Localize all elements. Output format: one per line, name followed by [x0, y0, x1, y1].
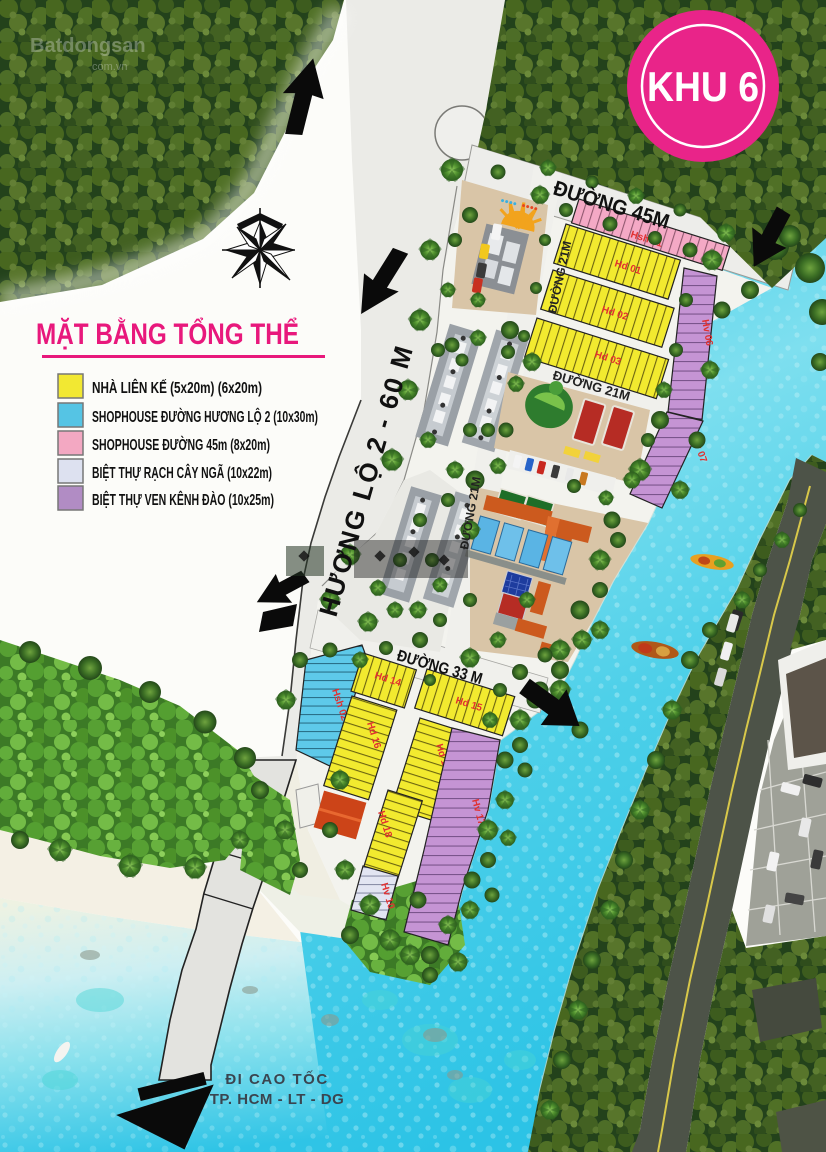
svg-text:SHOPHOUSE ĐƯỜNG HƯƠNG LỘ 2 (10: SHOPHOUSE ĐƯỜNG HƯƠNG LỘ 2 (10x30m) [92, 408, 318, 426]
svg-text:NHÀ LIÊN KẾ (5x20m) (6x20m): NHÀ LIÊN KẾ (5x20m) (6x20m) [92, 379, 262, 397]
svg-text:BIỆT THỰ RẠCH CÂY NGÃ (10x22m): BIỆT THỰ RẠCH CÂY NGÃ (10x22m) [92, 464, 272, 482]
svg-text:TP. HCM - LT - DG: TP. HCM - LT - DG [210, 1091, 345, 1108]
svg-text:ĐI CAO TỐC: ĐI CAO TỐC [225, 1070, 328, 1088]
svg-text:SHOPHOUSE ĐƯỜNG 45m (8x20m): SHOPHOUSE ĐƯỜNG 45m (8x20m) [92, 436, 270, 454]
svg-text:MẶT BẰNG TỔNG THỂ: MẶT BẰNG TỔNG THỂ [36, 317, 299, 351]
svg-text:BIỆT THỰ VEN KÊNH ĐÀO (10x25m): BIỆT THỰ VEN KÊNH ĐÀO (10x25m) [92, 491, 274, 509]
svg-text:Batdongsan: Batdongsan [30, 35, 146, 57]
svg-text:KHU 6: KHU 6 [647, 63, 759, 110]
svg-text:com.vn: com.vn [92, 61, 127, 73]
